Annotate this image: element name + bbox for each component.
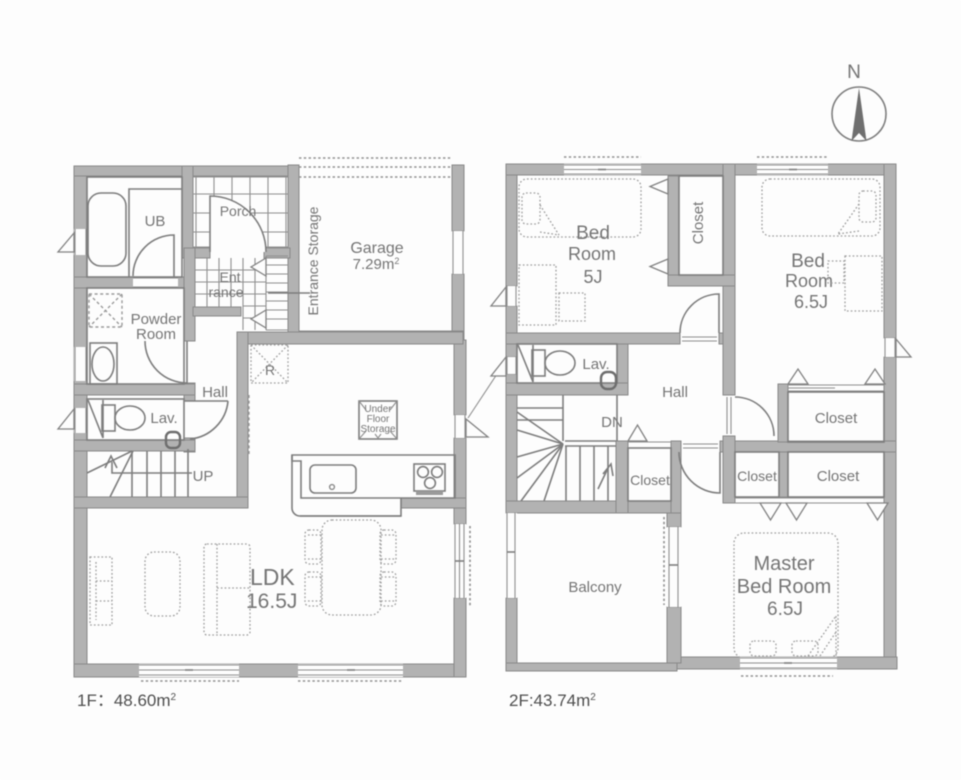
svg-text:Ent: Ent: [219, 269, 240, 285]
svg-text:Bed Room: Bed Room: [737, 576, 832, 598]
svg-text:Closet: Closet: [737, 468, 777, 484]
svg-text:16.5J: 16.5J: [246, 590, 297, 613]
svg-text:Closet: Closet: [815, 410, 858, 427]
svg-text:UP: UP: [193, 468, 214, 485]
svg-text:Room: Room: [136, 326, 176, 343]
svg-text:Closet: Closet: [630, 472, 670, 488]
svg-text:DN: DN: [601, 414, 623, 431]
svg-text:Lav.: Lav.: [150, 410, 177, 427]
svg-text:Closet: Closet: [690, 201, 707, 244]
svg-text:Room: Room: [785, 271, 833, 291]
svg-text:UB: UB: [145, 213, 166, 230]
svg-text:Room: Room: [568, 244, 616, 264]
svg-text:Porch: Porch: [220, 203, 257, 219]
svg-text:Balcony: Balcony: [568, 579, 622, 596]
svg-text:Entrance Storage: Entrance Storage: [305, 206, 321, 315]
svg-text:rance: rance: [208, 284, 243, 300]
svg-text:6.5J: 6.5J: [794, 292, 828, 312]
svg-text:2F:43.74m2: 2F:43.74m2: [509, 691, 596, 710]
svg-text:Master: Master: [753, 553, 814, 575]
svg-text:Garage: Garage: [350, 240, 403, 257]
svg-text:Closet: Closet: [817, 468, 860, 485]
svg-text:R: R: [265, 362, 275, 378]
svg-text:LDK: LDK: [250, 564, 295, 590]
svg-text:Bed: Bed: [791, 251, 825, 272]
svg-text:Storage: Storage: [360, 424, 395, 435]
svg-text:Hall: Hall: [202, 384, 228, 401]
svg-text:Hall: Hall: [662, 384, 688, 401]
svg-text:N: N: [847, 62, 861, 83]
svg-text:5J: 5J: [583, 267, 602, 287]
svg-text:Lav.: Lav.: [582, 356, 609, 373]
svg-text:6.5J: 6.5J: [767, 599, 803, 620]
svg-text:Bed: Bed: [576, 223, 610, 244]
svg-text:7.29m2: 7.29m2: [353, 256, 400, 273]
svg-text:1F：48.60m2: 1F：48.60m2: [77, 691, 177, 710]
